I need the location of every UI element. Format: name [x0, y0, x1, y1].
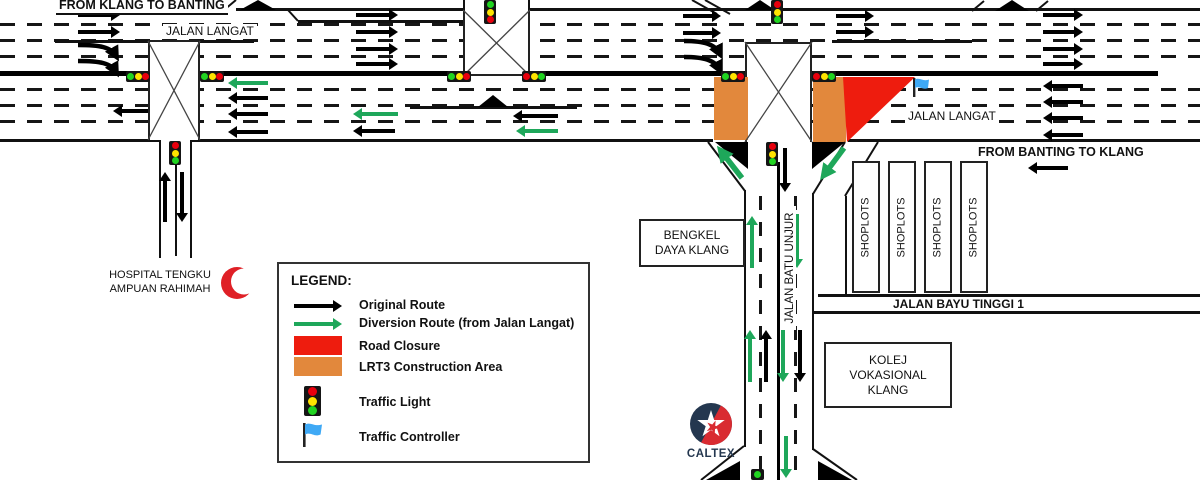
original-route-arrow — [1043, 9, 1083, 21]
original-route-arrow — [228, 92, 268, 104]
shoplot-label: SHOPLOTS — [967, 167, 982, 287]
diversion-route-arrow — [777, 330, 789, 382]
legend-item-label: Road Closure — [359, 339, 440, 353]
traffic-light — [200, 71, 224, 82]
shoplot-label: SHOPLOTS — [931, 167, 946, 287]
traffic-controller-legend-icon — [302, 422, 326, 448]
road-label-batu-unjur: JALAN BATU UNJUR — [784, 206, 796, 330]
direction-label-banting-to-klang: FROM BANTING TO KLANG — [975, 145, 1147, 159]
traffic-light — [812, 71, 836, 82]
traffic-light — [771, 0, 783, 24]
stub-edge — [463, 0, 465, 11]
bayu-tinggi-edge — [813, 311, 1200, 314]
traffic-light-legend-icon — [304, 386, 321, 416]
original-route-arrow — [836, 26, 874, 38]
original-route-arrow — [356, 58, 398, 70]
original-route-arrow — [513, 110, 558, 122]
red-crescent-icon — [221, 267, 257, 299]
hospital-label: HOSPITAL TENGKU AMPUAN RAHIMAH — [100, 268, 220, 296]
traffic-light — [484, 0, 496, 24]
junction-box-batu-unjur — [745, 42, 812, 142]
legend-item-label: Diversion Route (from Jalan Langat) — [359, 316, 574, 330]
batu-unjur-center-line — [777, 162, 780, 480]
diversion-route-arrow — [746, 216, 758, 268]
original-route-arrow — [1043, 26, 1083, 38]
legend-item-label: Original Route — [359, 298, 445, 312]
original-route-arrow — [683, 27, 721, 39]
shoplot-box: SHOPLOTS — [960, 161, 988, 293]
original-route-arrow — [1043, 129, 1083, 141]
stub-whiteout — [464, 6, 529, 12]
traffic-diversion-diagram: FROM KLANG TO BANTING JALAN LANGAT JALAN… — [0, 0, 1200, 480]
original-route-arrow — [1043, 80, 1083, 92]
bengkel-line2: DAYA KLANG — [655, 243, 729, 258]
road-edge-bottom — [848, 139, 1200, 142]
road-label-bayu-tinggi: JALAN BAYU TINGGI 1 — [890, 297, 1027, 311]
shoplot-label: SHOPLOTS — [895, 167, 910, 287]
junction-box-middle — [463, 10, 530, 76]
bengkel-line1: BENGKEL — [664, 228, 721, 243]
diversion-route-arrow — [780, 436, 792, 478]
original-route-arrow — [356, 9, 398, 21]
direction-label-klang-to-banting: FROM KLANG TO BANTING — [56, 0, 228, 15]
traffic-light — [447, 71, 471, 82]
original-route-legend-icon — [294, 300, 342, 312]
diversion-route-arrow — [228, 77, 268, 89]
road-closure-legend-icon — [294, 336, 342, 355]
road-edge-bottom — [192, 139, 713, 142]
original-route-arrow — [113, 105, 148, 117]
kolej-line1: KOLEJ — [869, 353, 907, 368]
original-route-arrow — [78, 26, 120, 38]
kolej-vokasional-box: KOLEJ VOKASIONAL KLANG — [824, 342, 952, 408]
original-route-arrow — [1043, 58, 1083, 70]
original-route-arrow — [159, 172, 171, 222]
batu-unjur-right-edge — [812, 193, 814, 450]
kolej-line3: KLANG — [868, 383, 909, 398]
shoplot-frontage-edge — [845, 196, 847, 295]
original-route-arrow — [356, 43, 398, 55]
shoplot-box: SHOPLOTS — [888, 161, 916, 293]
shoplot-label: SHOPLOTS — [859, 167, 874, 287]
hospital-label-line2: AMPUAN RAHIMAH — [100, 282, 220, 296]
original-route-arrow — [683, 10, 721, 22]
original-route-arrow — [356, 26, 398, 38]
legend-item-label: Traffic Controller — [359, 430, 460, 444]
road-label-jalan-langat-right: JALAN LANGAT — [905, 109, 999, 123]
lrt3-construction-legend-icon — [294, 357, 342, 376]
lrt3-construction-area — [813, 77, 846, 142]
traffic-light — [766, 142, 778, 166]
road-edge-bottom — [0, 139, 160, 142]
original-route-arrow — [228, 108, 268, 120]
legend-box: LEGEND: Original Route Diversion Route (… — [277, 262, 590, 463]
bengkel-daya-klang-box: BENGKEL DAYA KLANG — [639, 219, 745, 267]
lrt3-construction-area — [714, 77, 748, 140]
shoplot-box: SHOPLOTS — [852, 161, 880, 293]
original-route-arrow — [760, 330, 772, 382]
traffic-light — [169, 141, 181, 165]
caltex-label: CALTEX — [681, 448, 741, 460]
original-route-arrow — [1043, 112, 1083, 124]
traffic-light — [126, 71, 150, 82]
legend-title: LEGEND: — [291, 273, 352, 288]
road-edge-top — [236, 8, 463, 11]
legend-item-label: LRT3 Construction Area — [359, 360, 502, 374]
diversion-route-arrow — [353, 108, 398, 120]
shoplot-box: SHOPLOTS — [924, 161, 952, 293]
original-route-arrow — [779, 148, 791, 192]
median-island — [410, 106, 577, 109]
traffic-light — [721, 71, 745, 82]
diversion-route-arrow — [744, 330, 756, 382]
original-route-arrow — [794, 330, 806, 382]
stub-edge — [528, 0, 530, 11]
merge-edge — [55, 40, 148, 43]
traffic-light — [751, 469, 764, 480]
merge-edge — [200, 40, 254, 43]
original-route-arrow — [228, 126, 268, 138]
original-route-arrow — [353, 125, 395, 137]
kolej-line2: VOKASIONAL — [849, 368, 926, 383]
junction-box-hospital — [148, 40, 200, 140]
diversion-route-arrow — [516, 125, 558, 137]
original-route-arrow — [1043, 43, 1083, 55]
hospital-label-line1: HOSPITAL TENGKU — [100, 268, 220, 282]
original-route-arrow — [1043, 96, 1083, 108]
original-route-arrow — [1028, 162, 1068, 174]
diversion-route-legend-icon — [294, 318, 342, 330]
merge-edge — [832, 40, 972, 43]
traffic-light — [522, 71, 546, 82]
original-route-arrow — [836, 10, 874, 22]
original-route-arrow — [176, 172, 188, 222]
road-label-jalan-langat-left: JALAN LANGAT — [163, 24, 257, 38]
caltex-logo-icon — [690, 403, 739, 452]
hospital-road-edge — [190, 140, 192, 258]
legend-item-label: Traffic Light — [359, 395, 431, 409]
